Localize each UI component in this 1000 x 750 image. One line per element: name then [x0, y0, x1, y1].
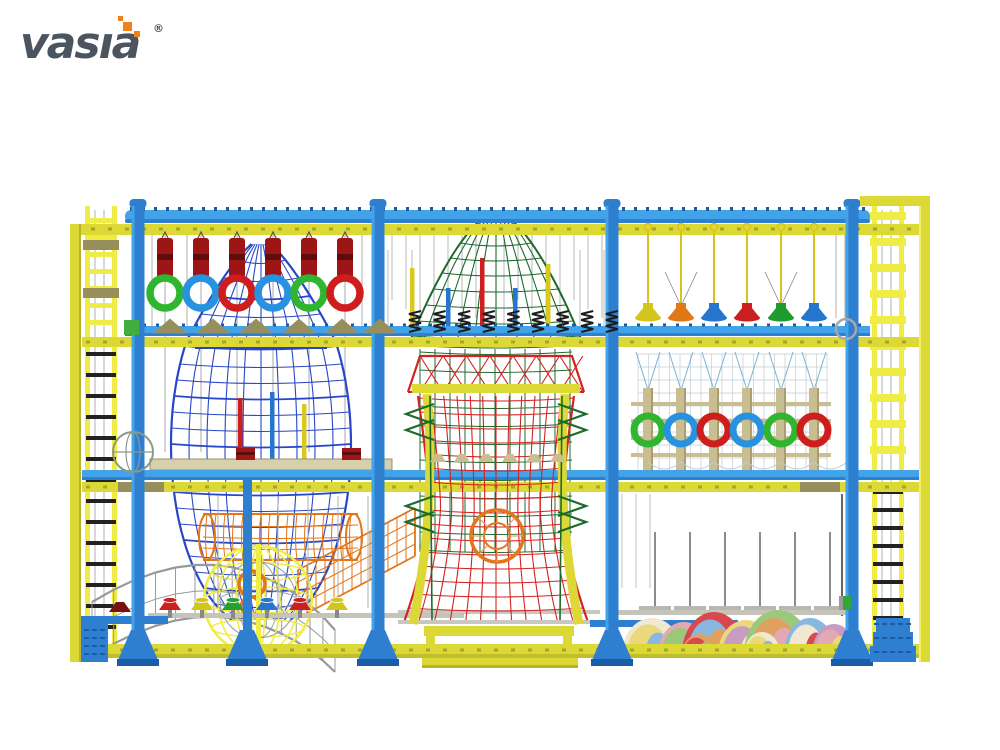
ladder-rung: [85, 303, 117, 308]
ladder-rung: [870, 446, 906, 454]
registered-mark: ®: [153, 22, 164, 35]
climb-post-net: [631, 352, 847, 474]
logo-pixel-icon: [118, 16, 123, 21]
rocket-inner-pole: [270, 392, 275, 465]
climb-net-ramp: [298, 508, 415, 618]
ladder-rung: [873, 580, 903, 584]
product-render-canvas: vasıa ®: [0, 0, 1000, 750]
ladder-rung: [86, 583, 116, 587]
ladder-rung: [870, 394, 906, 402]
ladder-rung: [870, 264, 906, 272]
ladder-left: [83, 206, 119, 656]
logo-pixel-icon: [134, 31, 140, 37]
tan-step: [454, 454, 470, 462]
ladder-rung: [86, 520, 116, 524]
ladder-rung: [873, 598, 903, 602]
connector-block: [124, 320, 139, 335]
ladder-rung: [86, 373, 116, 377]
ladder-rung: [870, 420, 906, 428]
gym-ring-row: [150, 278, 360, 308]
ladder-rung: [86, 436, 116, 440]
ladder-rung: [86, 541, 116, 545]
ladder-rung: [86, 457, 116, 461]
ladder-rung: [85, 235, 117, 240]
ladder-rung: [873, 544, 903, 548]
hanging-stepper-row: [635, 224, 856, 340]
ladder-rung: [873, 526, 903, 530]
ladder-rung: [85, 218, 117, 223]
vasia-logo: vasıa ®: [20, 14, 200, 78]
dome-pole: [446, 288, 451, 332]
ladder-right: [870, 206, 906, 656]
ladder-rung: [870, 212, 906, 220]
brand-name: vasıa: [20, 18, 139, 69]
ladder-rung: [85, 320, 117, 325]
logo-pixel-icon: [123, 22, 132, 31]
ladder-rung: [86, 562, 116, 566]
playground-structure-render: [0, 0, 1000, 750]
dome-pole: [410, 268, 415, 332]
ladder-rung: [870, 290, 906, 298]
ladder-rung: [86, 394, 116, 398]
ladder-rung: [873, 562, 903, 566]
ladder-rung: [86, 415, 116, 419]
dome-pole: [546, 264, 551, 332]
ladder-rung: [86, 604, 116, 608]
rocket-inner-pole: [302, 404, 307, 465]
ladder-rung: [870, 316, 906, 324]
ladder-rung: [870, 368, 906, 376]
punch-bag-row: [157, 232, 353, 278]
ladder-rung: [85, 252, 117, 257]
ladder-rung: [85, 269, 117, 274]
step-box-right: [870, 618, 916, 662]
tan-step: [502, 454, 518, 462]
ladder-rung: [86, 499, 116, 503]
ladder-rung: [870, 238, 906, 246]
bottom-beam: [82, 644, 928, 658]
ladder-rung: [86, 352, 116, 356]
ladder-rung: [873, 508, 903, 512]
